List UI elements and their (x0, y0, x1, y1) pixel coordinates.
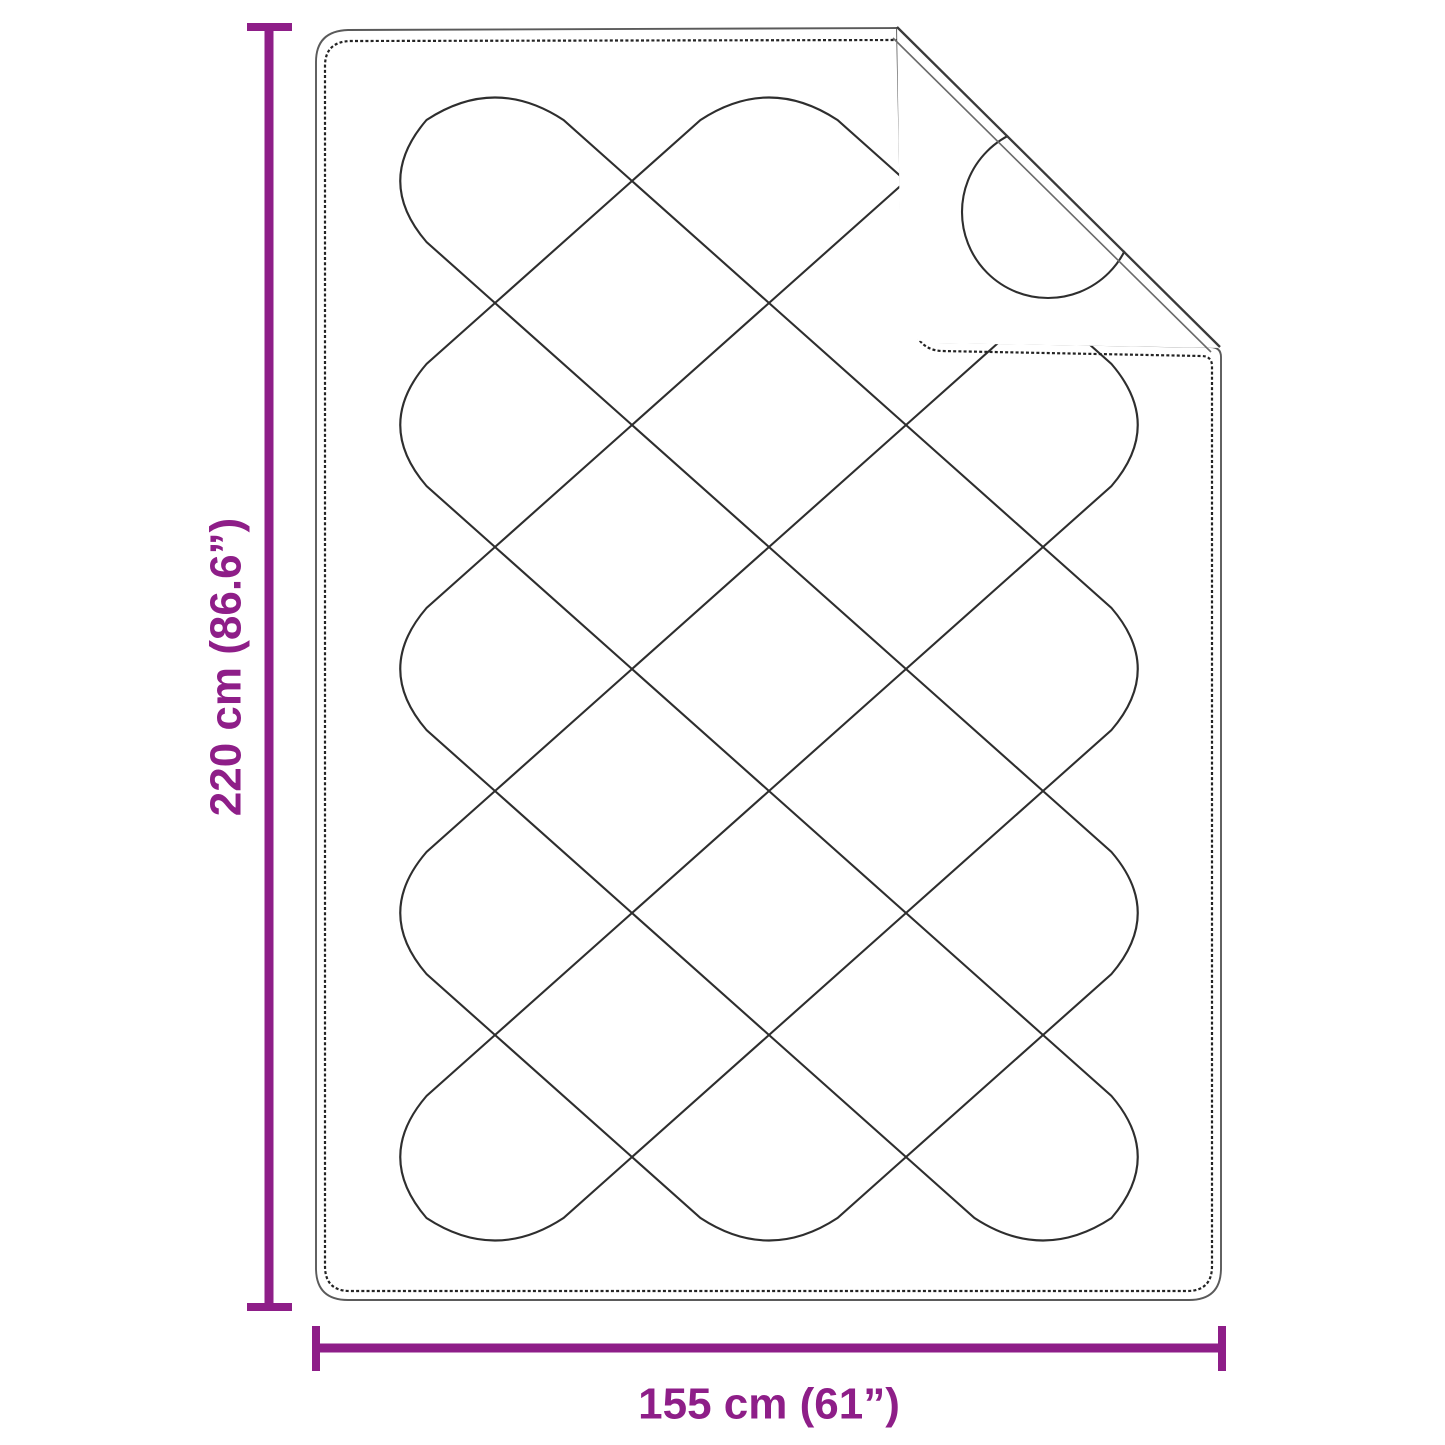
folded-corner-flap (893, 26, 1223, 352)
height-dimension-top-cap (247, 23, 292, 31)
width-dimension-left-cap (312, 1326, 320, 1371)
width-dimension-line (316, 1344, 1222, 1353)
blanket-drawing (316, 26, 1223, 1300)
height-dimension: 220 cm (86.6”) (201, 23, 292, 1311)
width-dimension: 155 cm (61”) (312, 1326, 1226, 1428)
height-dimension-line (265, 27, 274, 1309)
product-dimension-diagram: 220 cm (86.6”) 155 cm (61”) (0, 0, 1445, 1445)
height-label: 220 cm (86.6”) (201, 518, 250, 816)
width-label: 155 cm (61”) (638, 1379, 900, 1428)
width-dimension-right-cap (1218, 1326, 1226, 1371)
height-dimension-bottom-cap (247, 1303, 292, 1311)
diagram-canvas: 220 cm (86.6”) 155 cm (61”) (0, 0, 1445, 1445)
